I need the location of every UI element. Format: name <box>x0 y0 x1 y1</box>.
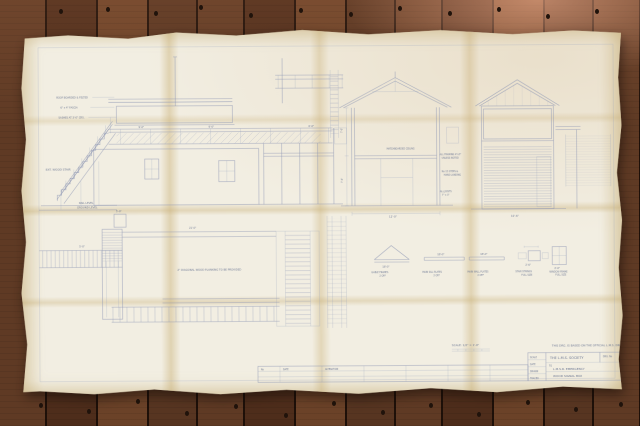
title-row-scale: SCALE <box>530 356 538 359</box>
side-elevation: ROOF BOARDED & FELTED 6" x 4" FASCIA SAS… <box>56 56 344 206</box>
plan-flight-dim: 5'-0" <box>79 245 85 248</box>
section-note-2b: HAND LANDING <box>444 174 462 177</box>
detail-3-dim: 18'-0" <box>480 253 487 256</box>
revision-h1: No <box>261 368 265 371</box>
return-flight-plan <box>102 231 122 261</box>
walkway-dim-c: 6'-0" <box>308 125 314 128</box>
rail-level-label: RAIL LEVEL <box>79 201 94 205</box>
revision-h3: ALTERATION <box>325 368 339 371</box>
stair-plan-treads <box>285 233 311 324</box>
plan-run-dim: 21'-0" <box>189 227 196 230</box>
detail-2-dim: 18'-0" <box>437 253 444 256</box>
detail-4-dim: 2'-6" <box>525 264 531 267</box>
fascia-note: 6" x 4" FASCIA <box>60 106 78 109</box>
title-subject: L.M.S.R. EMERGENCY <box>553 367 585 371</box>
window-band <box>116 106 232 124</box>
end-elevation: ALL FRAMING 4"x3" UNLESS NOTED No 15 STE… <box>439 79 611 218</box>
stair-label: EXT. WOOD STAIR <box>46 168 71 172</box>
title-society: THE L.M.S. SOCIETY <box>549 356 585 360</box>
title-row-drawn: DRAWN <box>530 370 539 373</box>
detail-2-qty: 2 OFF <box>433 274 440 277</box>
floor-nails <box>0 0 2 3</box>
walkway-framing <box>112 306 280 322</box>
blueprint-paper: EXT. WOOD STAIR RAIL LEVEL GROUND LEVEL <box>20 26 623 396</box>
photo-scene: EXT. WOOD STAIR RAIL LEVEL GROUND LEVEL <box>0 0 640 426</box>
gable-hatch <box>479 83 555 106</box>
based-on-note: THIS DRG. IS BASED ON THE OFFICIAL L.M.S… <box>551 343 623 347</box>
ground-level-label: GROUND LEVEL <box>77 206 98 210</box>
title-block: SCALE DATE DRAWN TRACED THE L.M.S. SOCIE… <box>528 352 623 381</box>
blueprint-sheet: EXT. WOOD STAIR RAIL LEVEL GROUND LEVEL <box>20 26 623 396</box>
weatherboard-wall <box>94 148 259 205</box>
detail-5-qty: FULL SIZE <box>555 274 567 277</box>
planking-note: 2" DIAGONAL WOOD PLANKING TO BE PROVIDED <box>177 267 241 271</box>
upper-flight-dim: 5'-9" <box>116 210 122 213</box>
far-right-structure <box>566 134 611 186</box>
section-flank-window-right <box>446 127 458 143</box>
detail-1-qty: 2 OFF <box>379 275 386 278</box>
section-width-dim: 12'-0" <box>389 215 397 219</box>
end-planking <box>484 145 552 207</box>
section-note-1b: UNLESS NOTED <box>442 157 459 160</box>
section-height-dim-1: 7'-0" <box>340 128 343 133</box>
section-ceiling-note: MATCHBOARDED CEILING <box>387 147 415 150</box>
sash-note: SASHES AT 3'-0" CRS. <box>58 116 84 119</box>
signal-ladder <box>330 74 338 134</box>
title-row-date: DATE <box>530 363 536 366</box>
detail-1-dim: 18'-0" <box>382 266 389 269</box>
title-to: TO <box>549 365 552 368</box>
scale-note-group: SCALE: 1/2" = 1'-0" <box>452 343 490 351</box>
title-drg-no: DRG. No <box>603 355 613 358</box>
revision-h2: DATE <box>283 368 289 371</box>
ladder-plan <box>327 218 347 326</box>
section-height-dim-2: 7'-6" <box>341 178 344 183</box>
section-note-3b: 7" x 3" <box>442 194 450 197</box>
detail-row: 18'-0" GABLE FRAMES 2 OFF 18'-0" MAIN SI… <box>371 244 568 277</box>
detail-4-qty: FULL SIZE <box>521 274 533 277</box>
detail-3-qty: 2 OFF <box>477 274 484 277</box>
walkway-dim-b: 9'-0" <box>208 126 214 129</box>
roof-note: ROOF BOARDED & FELTED <box>56 96 88 99</box>
upper-flight-plan <box>114 214 126 227</box>
stair-elevation: EXT. WOOD STAIR RAIL LEVEL GROUND LEVEL <box>38 117 117 210</box>
cross-section: 12'-0" MATCHBOARDED CEILING 7'-0" 7'-6" <box>330 69 459 219</box>
balustrade-bracing <box>117 132 321 144</box>
scale-note: SCALE: 1/2" = 1'-0" <box>452 343 480 347</box>
end-window-grid <box>483 109 551 139</box>
title-row-traced: TRACED <box>530 377 539 380</box>
plan-view: 5'-9" 2" DIAGONAL WOOD PLANKING TO BE PR… <box>39 209 347 330</box>
end-width-dim: 10'-6" <box>511 214 519 218</box>
title-subtitle: WOOD SIGNAL BOX <box>553 374 582 378</box>
blueprint-drawing: EXT. WOOD STAIR RAIL LEVEL GROUND LEVEL <box>20 26 623 396</box>
walkway-dim-a: 9'-0" <box>138 126 144 129</box>
